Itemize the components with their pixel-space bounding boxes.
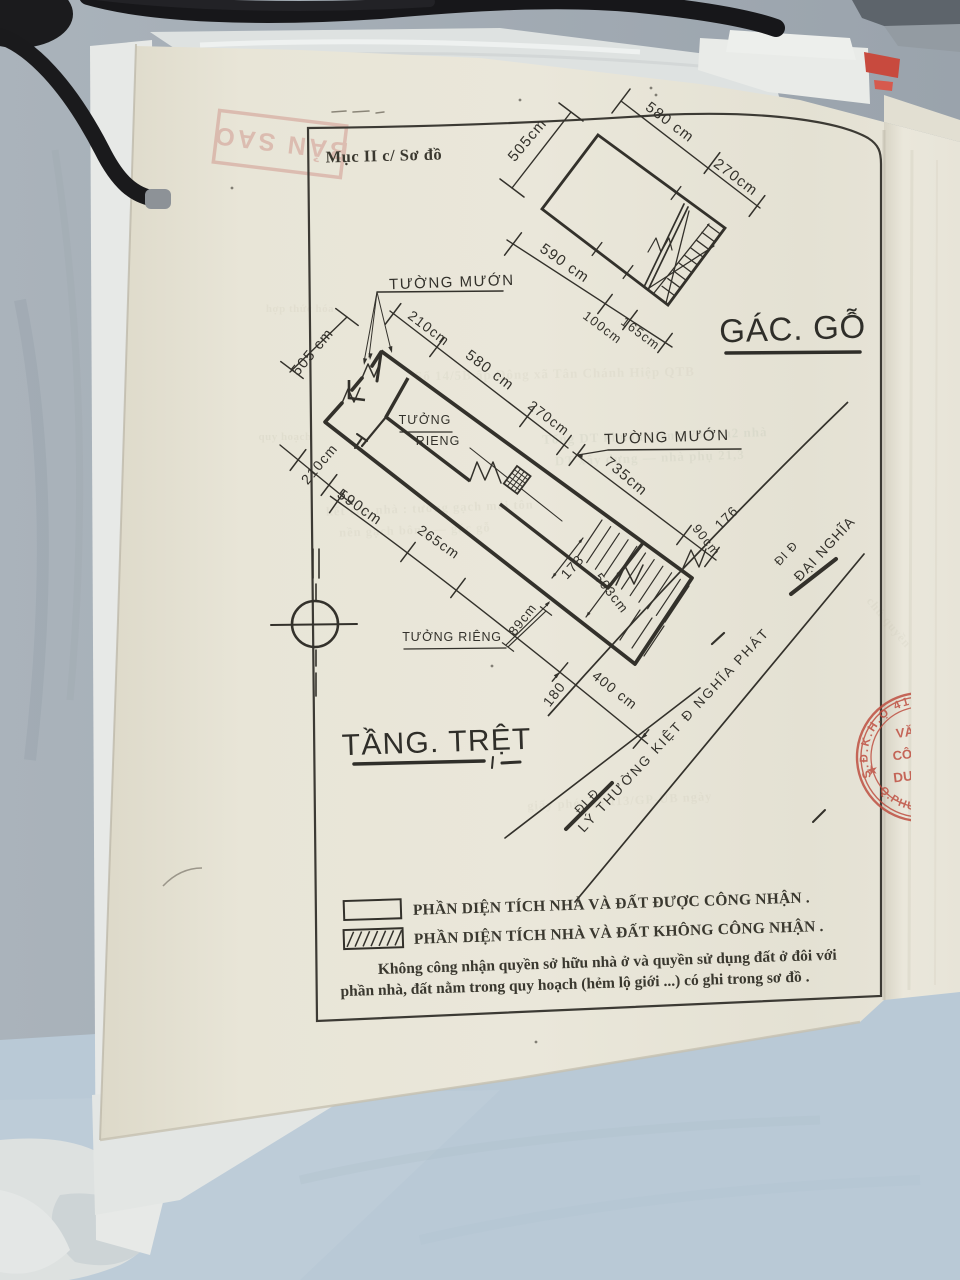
svg-text:RIENG: RIENG <box>416 434 461 448</box>
svg-text:TƯỞNG: TƯỞNG <box>399 412 452 427</box>
svg-text:hợp thức hóa: hợp thức hóa <box>266 303 334 315</box>
svg-text:Mục II c/ Sơ đồ: Mục II c/ Sơ đồ <box>325 144 442 166</box>
svg-text:TẦNG. TRỆT: TẦNG. TRỆT <box>341 722 532 763</box>
svg-text:GÁC. GỖ: GÁC. GỖ <box>719 307 867 349</box>
svg-text:TƯỞNG RIÊNG: TƯỞNG RIÊNG <box>402 629 502 644</box>
svg-text:quy hoạch: quy hoạch <box>258 431 311 443</box>
